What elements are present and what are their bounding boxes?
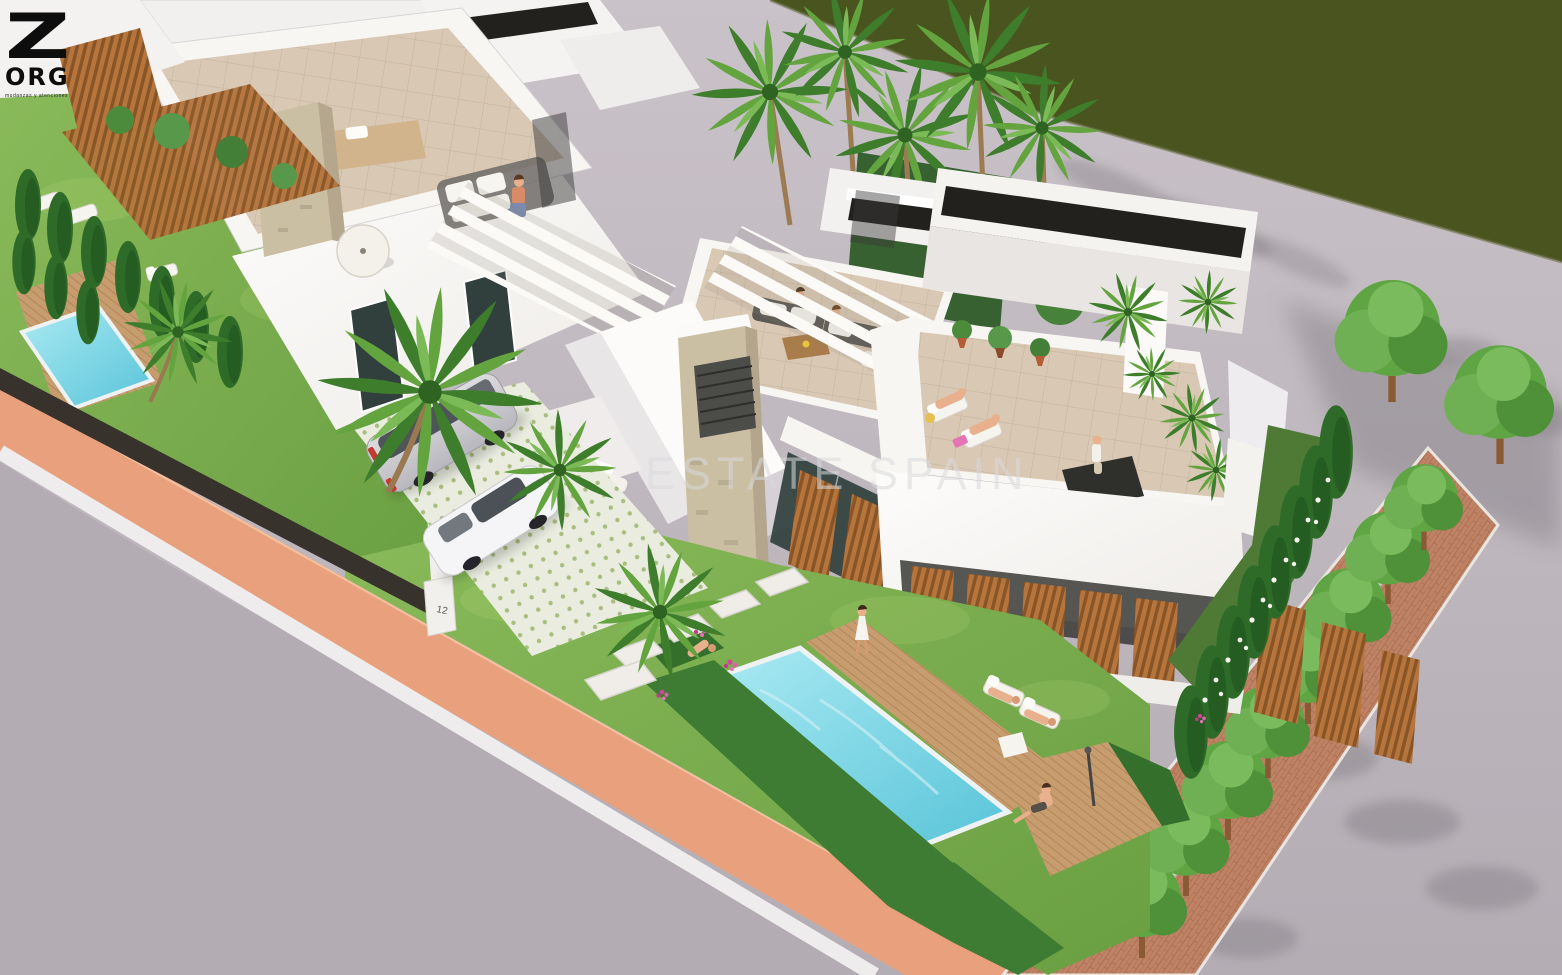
terrace-railing xyxy=(850,190,900,248)
logo-tagline: mudanzas y atenciones xyxy=(5,93,70,99)
watermark: ESTATE SPAIN xyxy=(645,448,1030,500)
logo: Z ORG mudanzas y atenciones xyxy=(5,12,70,99)
logo-letter: Z xyxy=(5,12,99,62)
render-image: 12 Z ORG mudanzas y atenciones ESTATE SP… xyxy=(0,0,1562,975)
vent-grille xyxy=(694,356,756,438)
